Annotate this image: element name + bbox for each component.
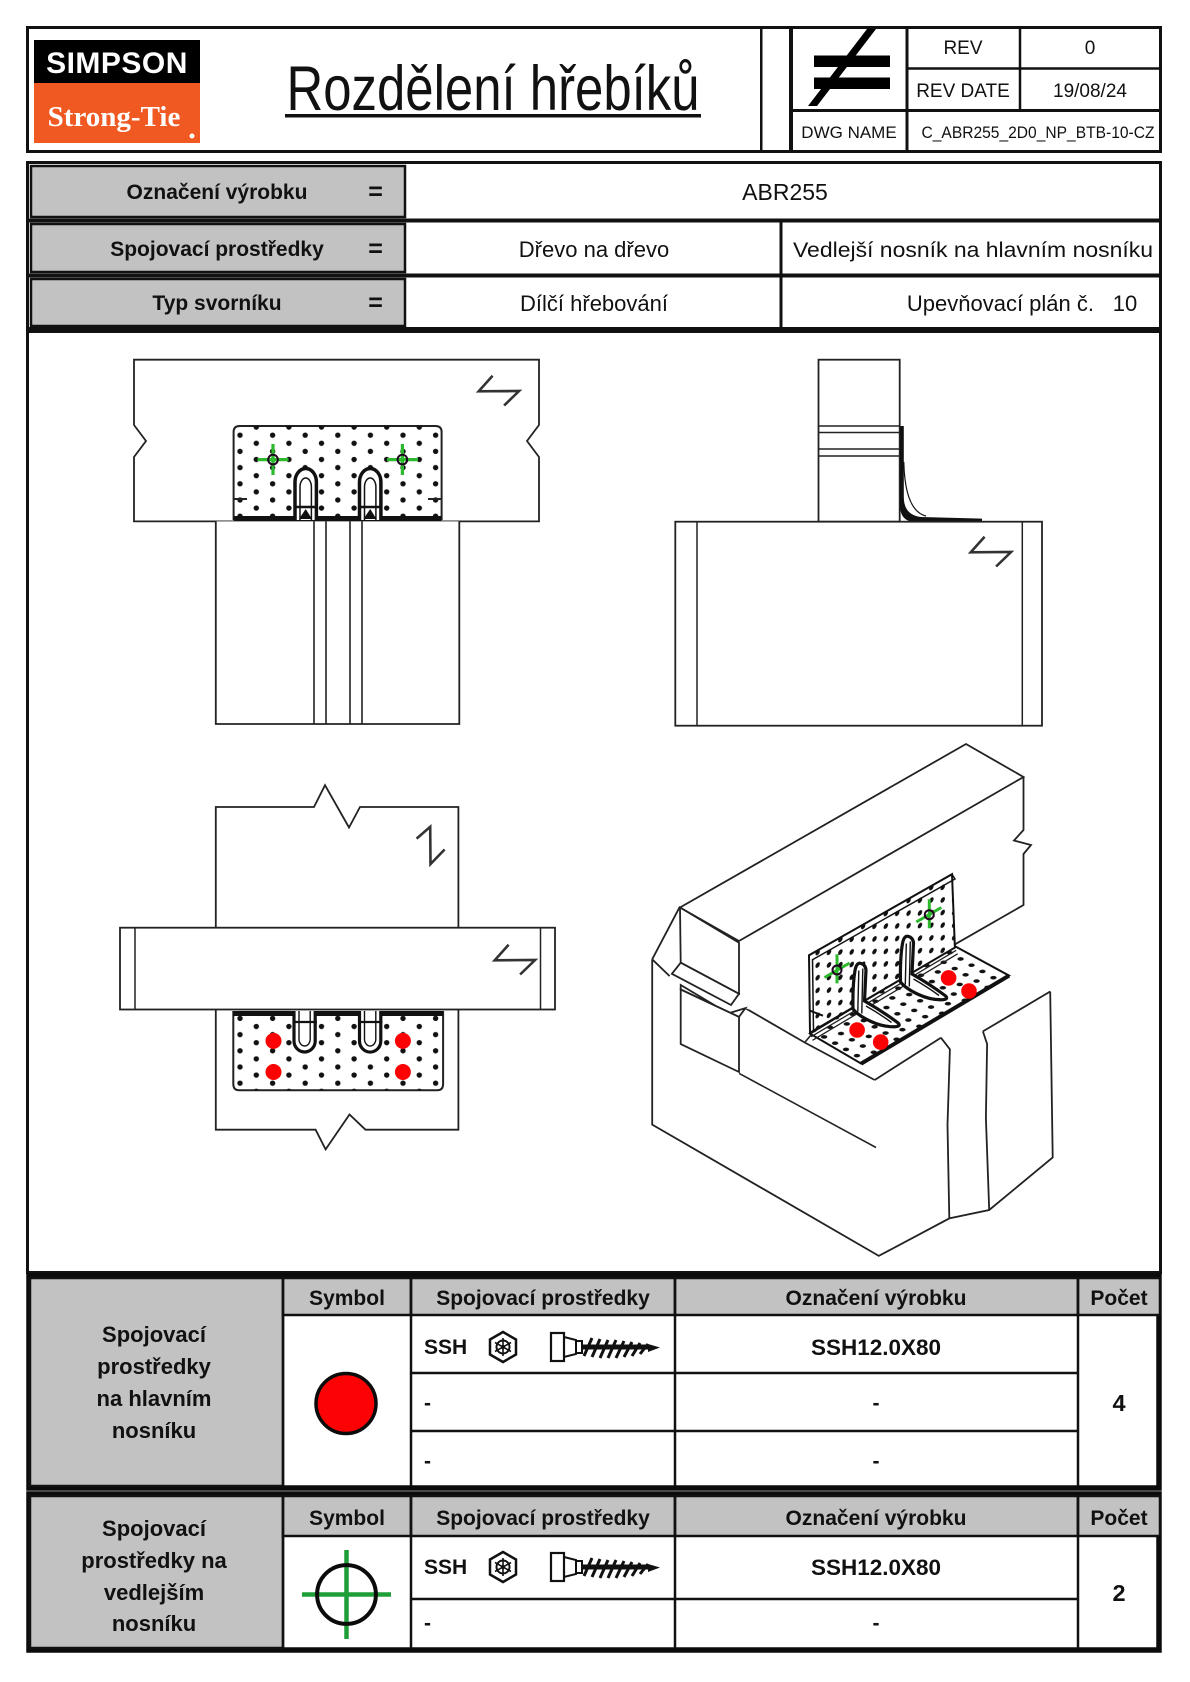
svg-text:REV DATE: REV DATE (916, 81, 1010, 102)
svg-text:na hlavním: na hlavním (97, 1386, 212, 1411)
svg-text:=: = (368, 289, 383, 317)
svg-text:Symbol: Symbol (309, 1287, 385, 1310)
svg-text:Dřevo na dřevo: Dřevo na dřevo (519, 237, 669, 262)
svg-text:0: 0 (1085, 38, 1096, 59)
svg-text:4: 4 (1112, 1390, 1125, 1416)
svg-text:Strong-Tie: Strong-Tie (48, 101, 181, 133)
svg-text:Označení výrobku: Označení výrobku (786, 1287, 967, 1310)
svg-text:19/08/24: 19/08/24 (1053, 81, 1127, 102)
svg-text:SIMPSON: SIMPSON (46, 47, 188, 80)
svg-text:prostředky na: prostředky na (81, 1548, 227, 1573)
svg-text:ABR255: ABR255 (742, 179, 828, 205)
svg-text:Spojovací: Spojovací (102, 1516, 207, 1541)
svg-text:Dílčí hřebování: Dílčí hřebování (520, 291, 668, 316)
svg-text:-: - (873, 1392, 880, 1415)
svg-text:REV: REV (943, 38, 982, 59)
svg-text:-: - (424, 1392, 431, 1415)
svg-text:-: - (873, 1450, 880, 1473)
svg-text:Spojovací prostředky: Spojovací prostředky (110, 238, 324, 261)
svg-text:nosníku: nosníku (112, 1611, 196, 1636)
svg-text:SSH12.0X80: SSH12.0X80 (811, 1555, 941, 1580)
svg-text:SSH12.0X80: SSH12.0X80 (811, 1335, 941, 1360)
svg-text:10: 10 (1113, 291, 1137, 316)
svg-text:Upevňovací plán č.: Upevňovací plán č. (907, 291, 1094, 316)
svg-text:SSH: SSH (424, 1556, 467, 1579)
svg-text:Počet: Počet (1090, 1287, 1147, 1310)
svg-text:DWG NAME: DWG NAME (801, 123, 896, 142)
svg-text:=: = (368, 235, 383, 263)
svg-text:=: = (368, 178, 383, 206)
svg-text:Typ svorníku: Typ svorníku (152, 292, 281, 315)
svg-text:SSH: SSH (424, 1336, 467, 1359)
svg-text:Rozdělení hřebíků: Rozdělení hřebíků (287, 54, 700, 124)
svg-text:nosníku: nosníku (112, 1418, 196, 1443)
svg-text:Spojovací prostředky: Spojovací prostředky (436, 1507, 650, 1530)
svg-text:-: - (873, 1612, 880, 1635)
svg-text:Počet: Počet (1090, 1507, 1147, 1530)
svg-text:Označení výrobku: Označení výrobku (786, 1507, 967, 1530)
svg-text:Označení výrobku: Označení výrobku (127, 181, 308, 204)
svg-text:prostředky: prostředky (97, 1354, 211, 1379)
svg-text:Spojovací: Spojovací (102, 1322, 207, 1347)
svg-text:2: 2 (1112, 1580, 1125, 1606)
svg-text:Symbol: Symbol (309, 1507, 385, 1530)
svg-text:-: - (424, 1450, 431, 1473)
svg-text:Vedlejší nosník na hlavním nos: Vedlejší nosník na hlavním nosníku (793, 239, 1153, 262)
svg-text:-: - (424, 1612, 431, 1635)
svg-text:C_ABR255_2D0_NP_BTB-10-CZ: C_ABR255_2D0_NP_BTB-10-CZ (922, 124, 1155, 142)
svg-text:Spojovací prostředky: Spojovací prostředky (436, 1287, 650, 1310)
svg-text:vedlejším: vedlejším (104, 1580, 204, 1605)
